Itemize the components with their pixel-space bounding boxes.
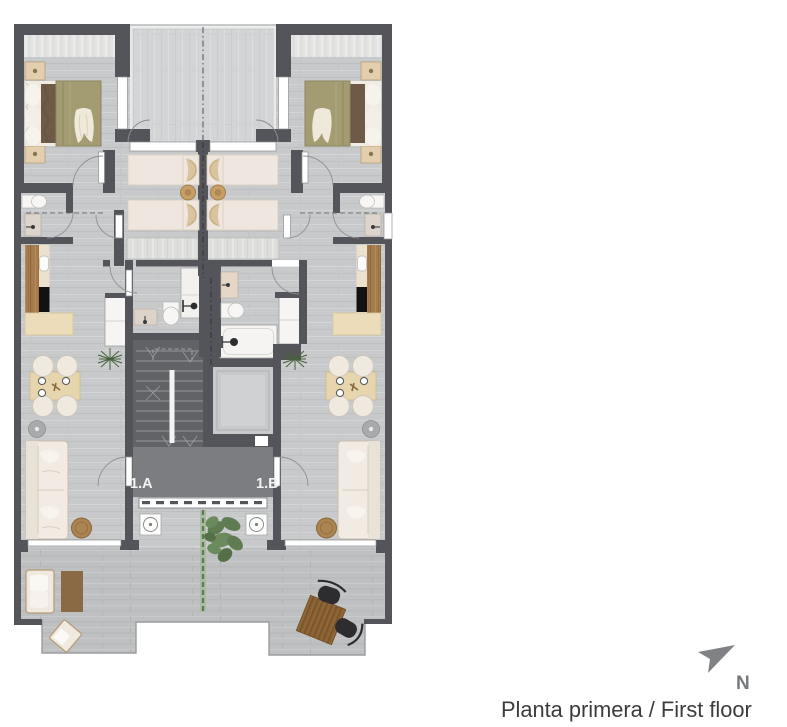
svg-text:Planta primera / First floor: Planta primera / First floor <box>501 697 752 722</box>
svg-text:1.A: 1.A <box>130 476 153 492</box>
svg-text:N: N <box>736 673 750 694</box>
svg-text:1.B: 1.B <box>256 476 279 492</box>
